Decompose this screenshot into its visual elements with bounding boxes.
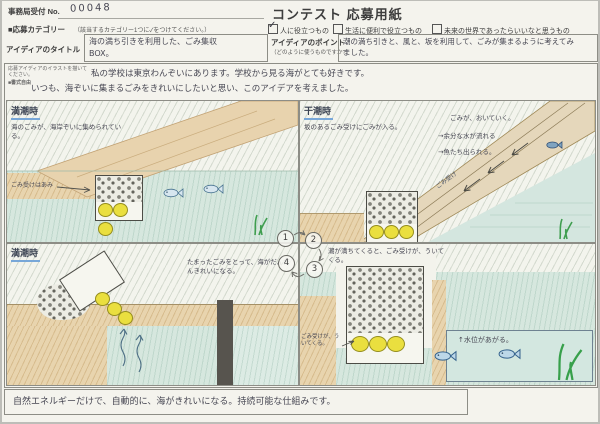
checkbox-checked-icon: ✓	[268, 24, 278, 34]
panel2-note-water: →余分な水が流れる	[438, 132, 568, 141]
panel2-note-fish: →魚たち出られる。	[438, 148, 568, 157]
seaweed-icon	[559, 344, 582, 380]
panel1-caption: 海のごみが、海岸ぞいに集められている。	[11, 123, 123, 140]
float-label: ごみ受けが、ういてくる。	[301, 334, 343, 348]
receipt-field: 00048	[58, 2, 264, 19]
cycle-step-2: 2	[305, 232, 322, 249]
idea-point-value: 潮の満ち引きと、風と、坂を利用して、ごみが集まるように考えてみました。	[343, 36, 575, 58]
rising-water-arrow	[120, 329, 127, 366]
buoy-icon	[369, 225, 384, 239]
seaweed-icon	[255, 215, 267, 235]
idea-point-label: アイディアのポイント	[271, 37, 345, 48]
cycle-arrow-1-2	[294, 231, 305, 236]
cycle-step-4: 4	[278, 255, 295, 272]
buoy-icon	[384, 225, 399, 239]
panel-floating: 潮が満ちてくると、ごみ受けが、ういてくる。 ごみ受けが、ういてくる。 ↑水位があ…	[299, 243, 596, 386]
buoy-icon	[98, 222, 113, 236]
buoy-icon	[118, 311, 133, 325]
water-level-label: ↑水位があがる。	[458, 335, 513, 345]
net-label: ごみ受けはあみ	[11, 180, 61, 189]
panel1-title: 満潮時	[11, 104, 40, 120]
panel4-caption: 潮が満ちてくると、ごみ受けが、ういてくる。	[328, 247, 448, 264]
receipt-label: 事務局受付 No.	[8, 6, 60, 17]
category-option-people: ✓人に役立つもの	[268, 24, 329, 36]
panel4-drawing	[300, 244, 595, 385]
idea-title-label: アイディアのタイトル	[6, 44, 80, 55]
fish-icon	[204, 185, 223, 193]
fish-icon	[435, 352, 456, 361]
checkbox-empty-icon	[432, 24, 442, 34]
panel2-note-garbage: ごみが、おいていく。	[450, 114, 570, 123]
rising-water-arrow	[136, 335, 143, 372]
intro-line-1: 私の学校は東京わんぞいにあります。学校から見る海がとても好きです。	[91, 67, 369, 79]
panel-low-tide: 干潮時 坂のあるごみ受けにごみが入る。 ごみが、おいていく。 →余分な水が流れる…	[299, 100, 596, 243]
category-note: （該当するカテゴリー1つに✓をつけてください。）	[74, 25, 210, 34]
illustration-format-note: ■書式自由	[8, 79, 31, 86]
form-title: コンテスト 応募用紙	[272, 4, 403, 23]
buoy-icon	[113, 203, 128, 217]
footer-text: 自然エネルギーだけで、自動的に、海がきれいになる。持続可能な仕組みです。	[13, 394, 335, 407]
idea-title-value: 海の満ち引きを利用した、ごみ集収BOX。	[89, 36, 241, 60]
panel2-title: 干潮時	[304, 104, 333, 120]
idea-title-box: 海の満ち引きを利用した、ごみ集収BOX。	[84, 34, 268, 62]
cycle-arrow-3-4	[292, 272, 304, 277]
buoy-row	[367, 224, 417, 243]
application-form-page: 事務局受付 No. 00048 コンテスト 応募用紙 ■応募カテゴリー （該当す…	[0, 0, 600, 424]
checkmark-icon: ✓	[268, 20, 276, 31]
panel3-title: 満潮時	[11, 246, 40, 262]
panel-emptying: 満潮時 たまったごみをとって、海がだんだんきれいになる。	[6, 243, 299, 386]
buoy-icon	[399, 225, 414, 239]
cycle-step-1: 1	[277, 230, 294, 247]
category-option-label: 人に役立つもの	[280, 28, 329, 35]
trash-box	[366, 191, 418, 243]
footer-box: 自然エネルギーだけで、自動的に、海がきれいになる。持続可能な仕組みです。	[4, 389, 468, 415]
arrow-to-box	[342, 341, 354, 346]
fish-icon	[499, 350, 520, 359]
trash-box	[95, 175, 143, 221]
buoy-icon	[98, 203, 113, 217]
buoy-row	[96, 202, 142, 242]
cycle-step-3: 3	[306, 261, 323, 278]
panel2-caption: 坂のあるごみ受けにごみが入る。	[304, 123, 404, 132]
idea-point-box: 潮の満ち引きと、風と、坂を利用して、ごみが集まるように考えてみました。	[338, 34, 598, 62]
category-label: ■応募カテゴリー	[8, 24, 65, 35]
fish-icon	[164, 189, 183, 197]
checkbox-empty-icon	[333, 24, 343, 34]
cycle-arrow-2-3	[319, 249, 324, 261]
illustration-instruction: 応募アイディアのイラストを描いてください。	[8, 66, 88, 78]
garbage-dots	[96, 176, 142, 202]
intro-line-2: いつも、海ぞいに集まるごみをきれいにしたいと思い、このアイデアを考えました。	[31, 82, 353, 94]
seawall-slope	[37, 101, 298, 197]
cycle-diagram: 1 2 3 4	[268, 224, 334, 286]
receipt-number: 00048	[70, 2, 112, 14]
garbage-dots	[367, 192, 417, 224]
panel-high-tide: 満潮時 海のごみが、海岸ぞいに集められている。 ごみ受けはあみ	[6, 100, 299, 243]
